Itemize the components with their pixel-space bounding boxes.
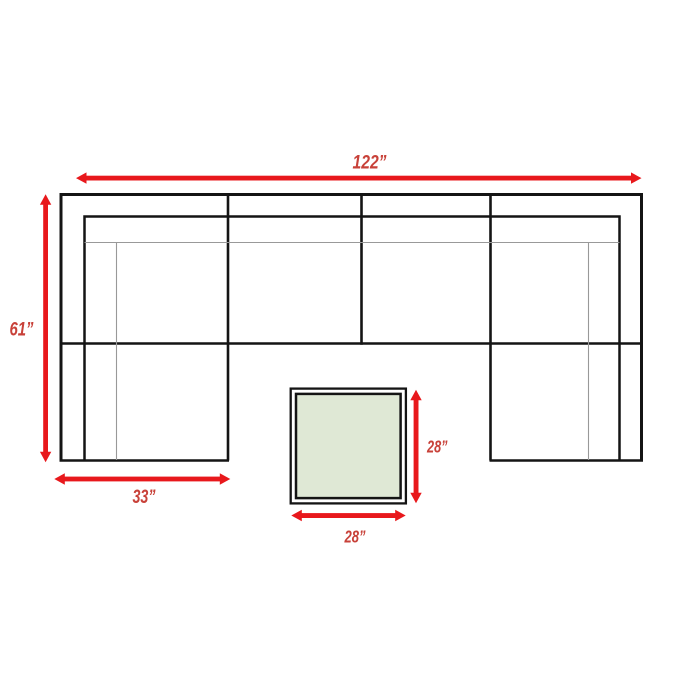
svg-text:122”: 122” [353,153,387,174]
svg-text:28”: 28” [344,527,366,547]
svg-text:61”: 61” [10,320,34,341]
svg-text:28”: 28” [426,437,447,457]
svg-text:33”: 33” [133,487,156,508]
